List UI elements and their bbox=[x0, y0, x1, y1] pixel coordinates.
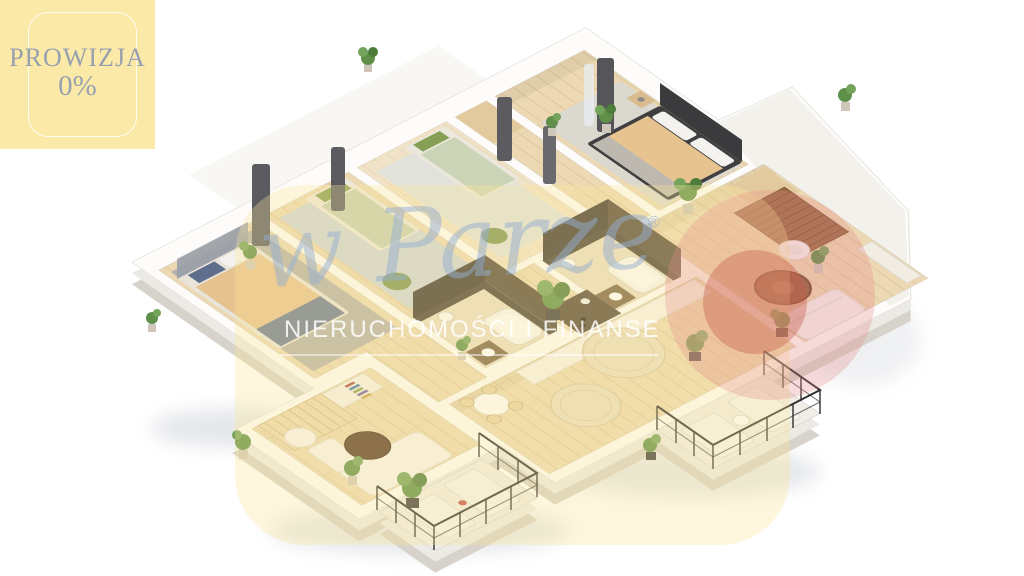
sheer-curtain bbox=[584, 64, 594, 126]
plant bbox=[358, 47, 378, 72]
promo-badge-title: PROWIZJA bbox=[0, 44, 155, 71]
promo-badge-value: 0% bbox=[0, 71, 155, 103]
promo-badge: PROWIZJA 0% bbox=[0, 0, 155, 149]
plant bbox=[838, 84, 856, 111]
real-estate-floorplan-image: w Parze ® NIERUCHOMOŚCI I FINANSE PROWIZ… bbox=[0, 0, 1024, 576]
plant bbox=[146, 309, 161, 332]
